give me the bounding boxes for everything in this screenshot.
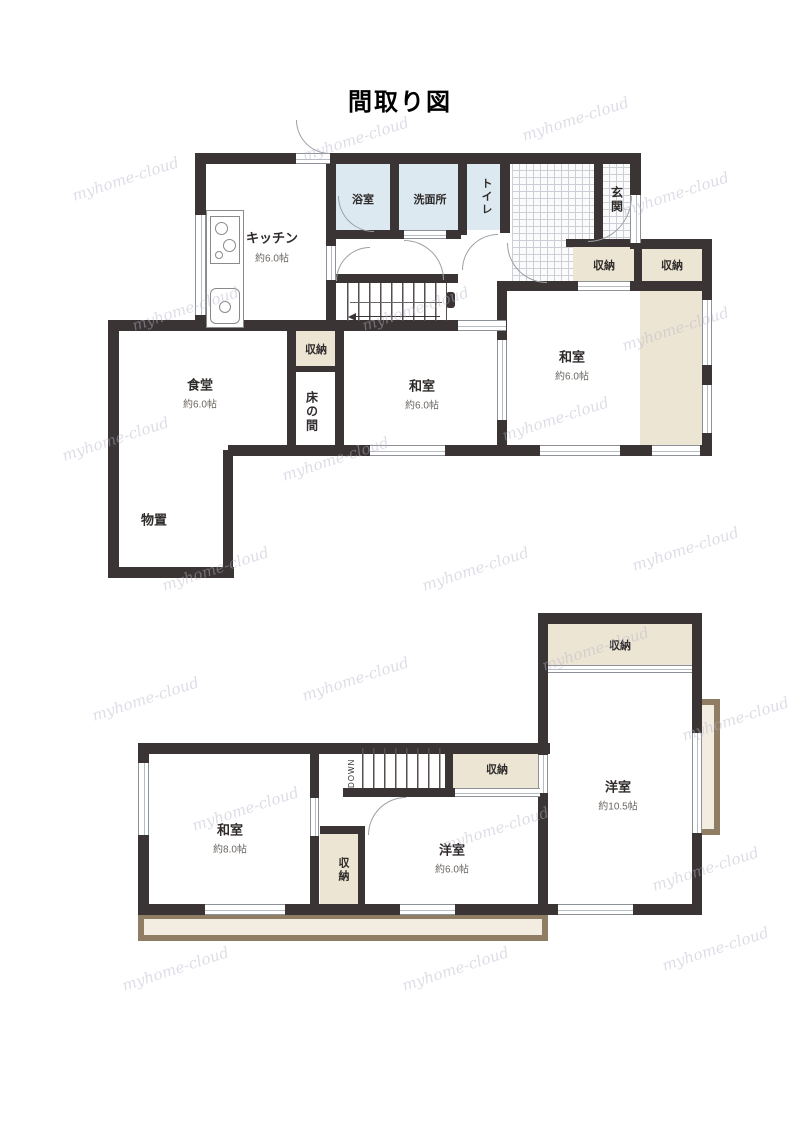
room-label-bath: 浴室 [352, 191, 374, 207]
door-opening [296, 153, 330, 164]
wall-segment [390, 153, 399, 238]
staircase-2f [362, 748, 445, 788]
door-arc [296, 120, 330, 154]
sliding-door [497, 340, 507, 420]
room-size-youshitsu-east: 約10.5帖 [598, 798, 637, 813]
wall-segment [200, 153, 640, 164]
room-label-washitsu-center: 和室 [409, 376, 435, 395]
stove-icon [210, 216, 240, 264]
burner-icon [215, 222, 228, 235]
watermark-text: myhome-cloud [500, 393, 611, 444]
wall-segment [538, 613, 702, 624]
watermark-text: myhome-cloud [120, 943, 231, 994]
wall-segment [358, 826, 365, 914]
wall-segment [538, 613, 548, 755]
storage-label: 収納 [305, 341, 327, 357]
window [702, 300, 712, 365]
room-label-youshitsu-east: 洋室 [605, 777, 631, 796]
watermark-text: myhome-cloud [90, 673, 201, 724]
room-size-washitsu-2f: 約8.0帖 [213, 841, 247, 856]
closet-sliding-door [548, 665, 692, 673]
window [652, 445, 700, 456]
wall-segment [500, 153, 510, 233]
storage-label: 収納 [593, 257, 615, 273]
window [540, 445, 620, 456]
stair-rail-line [350, 302, 442, 303]
wall-segment [108, 320, 208, 331]
sliding-door [458, 320, 506, 331]
window [558, 904, 633, 915]
room-label-youshitsu-center: 洋室 [439, 840, 465, 859]
watermark-text: myhome-cloud [70, 153, 181, 204]
closet-sliding-door [455, 788, 540, 797]
room-label-toilet: トイレ [478, 178, 494, 217]
window [195, 215, 206, 315]
wall-segment [458, 153, 467, 235]
door-arc [368, 797, 406, 835]
storage-label-vertical: 収納 [335, 857, 351, 883]
room-label-kitchen: キッチン [246, 228, 298, 247]
sink-icon [210, 288, 240, 324]
stair-arrow-line [356, 316, 440, 317]
wall-segment [223, 450, 233, 570]
room-size-washitsu-center: 約6.0帖 [405, 397, 439, 412]
storage-label: 収納 [486, 761, 508, 777]
room-label-washitsu-2f: 和室 [217, 820, 243, 839]
room-label-entrance: 玄関 [609, 186, 626, 214]
door-opening [404, 230, 446, 239]
wall-segment [326, 153, 336, 331]
door-opening [326, 246, 336, 280]
watermark-text: myhome-cloud [400, 943, 511, 994]
watermark-text: myhome-cloud [420, 543, 531, 594]
room-label-tokonoma: 床の間 [304, 391, 321, 433]
room-label-washroom: 洗面所 [414, 191, 447, 207]
door-arc [462, 234, 498, 270]
entrance-door-opening [630, 195, 641, 243]
room-label-dining: 食堂 [187, 375, 213, 394]
balcony-south [138, 913, 548, 941]
door-arc [336, 247, 370, 281]
watermark-text: myhome-cloud [660, 923, 771, 974]
room-size-dining: 約6.0帖 [183, 396, 217, 411]
door-arc [404, 240, 444, 280]
room-size-washitsu-east: 約6.0帖 [555, 368, 589, 383]
window [138, 763, 149, 835]
room-size-kitchen: 約6.0帖 [255, 250, 289, 265]
room-label-storeroom: 物置 [141, 510, 167, 529]
stair-newel [446, 292, 455, 308]
wall-segment [634, 245, 642, 287]
engawa-strip [640, 288, 702, 448]
wall-segment [287, 320, 296, 456]
burner-icon [215, 251, 223, 259]
drain-icon [219, 301, 231, 313]
floorplan-page: 間取り図 [0, 0, 800, 1132]
window [205, 904, 285, 915]
storage-label: 収納 [609, 637, 631, 653]
watermark-text: myhome-cloud [300, 653, 411, 704]
wall-segment [335, 328, 344, 456]
room-label-washitsu-east: 和室 [559, 347, 585, 366]
watermark-text: myhome-cloud [190, 783, 301, 834]
window [370, 445, 445, 456]
window [702, 385, 712, 433]
wall-segment [343, 788, 455, 797]
door-opening [310, 798, 319, 836]
stair-arrow-head [348, 313, 356, 321]
wall-segment [445, 743, 453, 797]
sliding-door [578, 281, 630, 291]
burner-icon [223, 239, 236, 252]
room-size-youshitsu-center: 約6.0帖 [435, 861, 469, 876]
window [400, 904, 455, 915]
page-title: 間取り図 [0, 82, 800, 117]
stairs-down-label: DOWN [347, 750, 356, 788]
storage-label: 収納 [661, 257, 683, 273]
wall-segment [108, 567, 234, 578]
wall-segment [630, 239, 712, 249]
watermark-text: myhome-cloud [630, 523, 741, 574]
wall-segment [108, 320, 119, 578]
wall-segment [287, 320, 465, 331]
wall-segment [228, 445, 712, 456]
watermark-text: myhome-cloud [650, 843, 761, 894]
balcony-door [692, 733, 702, 833]
wall-segment [138, 743, 550, 754]
